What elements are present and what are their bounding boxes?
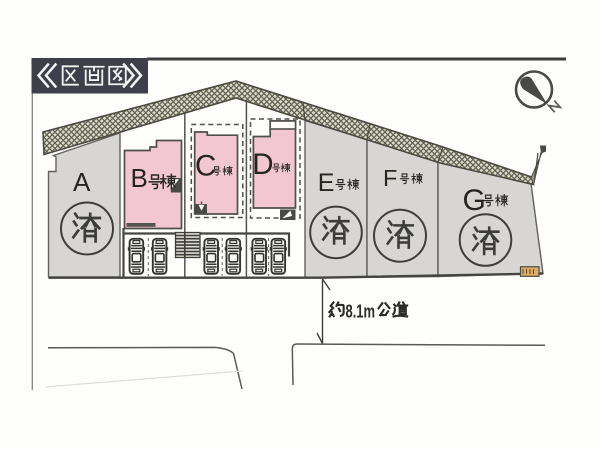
svg-text:A: A	[73, 167, 91, 197]
svg-text:E: E	[318, 169, 335, 197]
svg-text:D: D	[252, 148, 273, 181]
svg-text:8.1m: 8.1m	[346, 301, 376, 322]
svg-text:F: F	[383, 165, 397, 191]
svg-text:G: G	[463, 184, 486, 217]
svg-text:C: C	[195, 150, 216, 183]
svg-text:B: B	[131, 163, 148, 193]
